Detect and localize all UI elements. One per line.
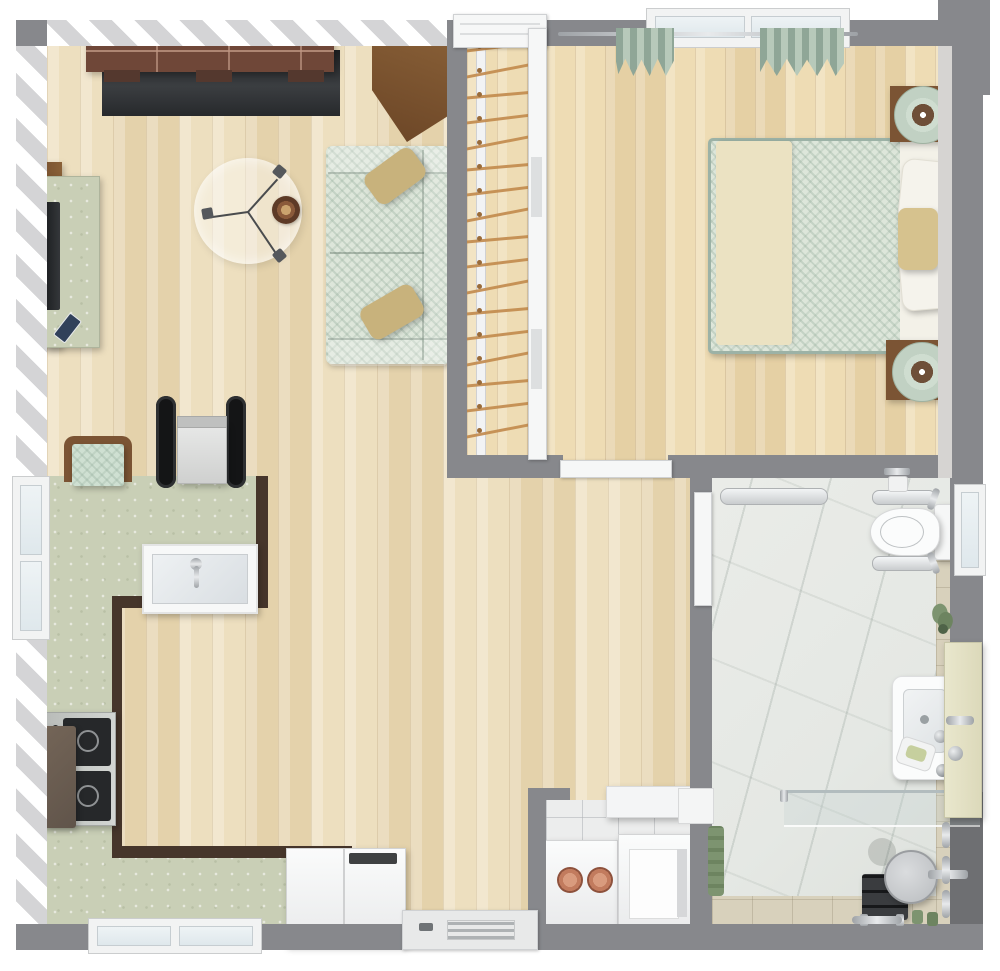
hose-connector	[587, 867, 613, 893]
hanger-hook	[477, 68, 482, 73]
toiletry-bottle	[948, 746, 963, 761]
hanger-hook	[477, 164, 482, 169]
wall-laundry-west	[528, 788, 546, 928]
hose-connector	[557, 867, 583, 893]
shampoo-bottle	[912, 910, 923, 924]
hanger-hook	[477, 428, 482, 433]
wheelchair-wheel	[156, 396, 176, 488]
hanger-hook	[477, 356, 482, 361]
apartment-floor-plan	[0, 0, 1000, 971]
wall-living-closet	[447, 20, 467, 478]
hanger-hook	[477, 308, 482, 313]
hanger-hook	[477, 284, 482, 289]
door-vent-grille	[447, 920, 515, 940]
bathroom-window	[954, 484, 986, 576]
wall-grab-handle	[942, 822, 950, 848]
dryer	[618, 834, 692, 930]
hanger-hook	[477, 380, 482, 385]
closet-sliding-door	[528, 28, 547, 460]
mantel-bracket	[104, 70, 140, 82]
plant	[930, 604, 956, 636]
hanger-hook	[477, 404, 482, 409]
wall-laundry-stub	[528, 788, 570, 800]
wall-niche-shelf	[678, 788, 714, 824]
kitchen-window-bottom	[88, 918, 262, 954]
wall-grab-bar	[720, 488, 828, 505]
vanity-counter	[944, 642, 982, 818]
basin-faucet	[946, 716, 974, 725]
hanger-hook	[477, 212, 482, 217]
screen-hinge	[780, 790, 788, 802]
mantel-bracket	[288, 70, 324, 82]
washing-machine	[544, 840, 618, 930]
hanger-hook	[477, 260, 482, 265]
wheelchair-wheel	[226, 396, 246, 488]
basin-drain	[920, 715, 929, 724]
wall-bedroom-south	[668, 455, 983, 478]
mantel-bracket	[196, 70, 232, 82]
bedroom-east-wall-face	[938, 46, 952, 478]
chair-arm	[124, 446, 132, 482]
cream-runner	[716, 141, 792, 345]
wall-left-sunlit	[16, 46, 47, 480]
wheelchair-backrest	[177, 416, 227, 428]
wall-grab-handle	[942, 890, 950, 918]
freezer-handle	[349, 853, 397, 864]
closet-rod	[476, 36, 486, 458]
sofa-cushion-seam	[330, 252, 424, 254]
shampoo-bottle	[927, 912, 938, 926]
hanger-hook	[477, 188, 482, 193]
accessible-toilet	[862, 486, 958, 576]
chair-arm	[64, 446, 72, 482]
toilet-seat-line	[880, 516, 924, 548]
wall-left-sunlit	[16, 640, 47, 924]
coffee-table	[194, 158, 310, 270]
entry-door	[402, 910, 538, 950]
decor-bowl	[272, 196, 300, 224]
toilet-paper-holder	[884, 466, 912, 492]
dryer-lid	[629, 849, 679, 919]
hanger-hook	[477, 92, 482, 97]
dining-chair	[62, 436, 134, 488]
toilet-grab-bar	[872, 556, 936, 571]
sink-faucet-spout	[194, 566, 199, 588]
wheelchair-seat	[177, 424, 227, 484]
table-foot	[201, 207, 214, 220]
bathroom-open-door	[694, 492, 712, 606]
wheelchair	[156, 394, 246, 490]
chair-cushion	[72, 444, 124, 486]
hanger-hook	[477, 140, 482, 145]
wall-top-sunlit	[47, 20, 447, 46]
hanger-hook	[477, 236, 482, 241]
hanger-hook	[477, 116, 482, 121]
towel	[708, 826, 724, 896]
wall-grab-handle	[942, 856, 950, 884]
hanger-hook	[477, 332, 482, 337]
bed-pillow-tan	[898, 208, 938, 270]
toilet-grab-bar	[872, 490, 936, 505]
kitchen-sink	[142, 544, 258, 614]
kitchen-window-left	[12, 476, 50, 640]
shower-hand-bar	[852, 916, 902, 924]
dryer-panel	[677, 849, 687, 917]
door-handle	[419, 923, 433, 931]
bedroom-open-door	[560, 460, 672, 478]
